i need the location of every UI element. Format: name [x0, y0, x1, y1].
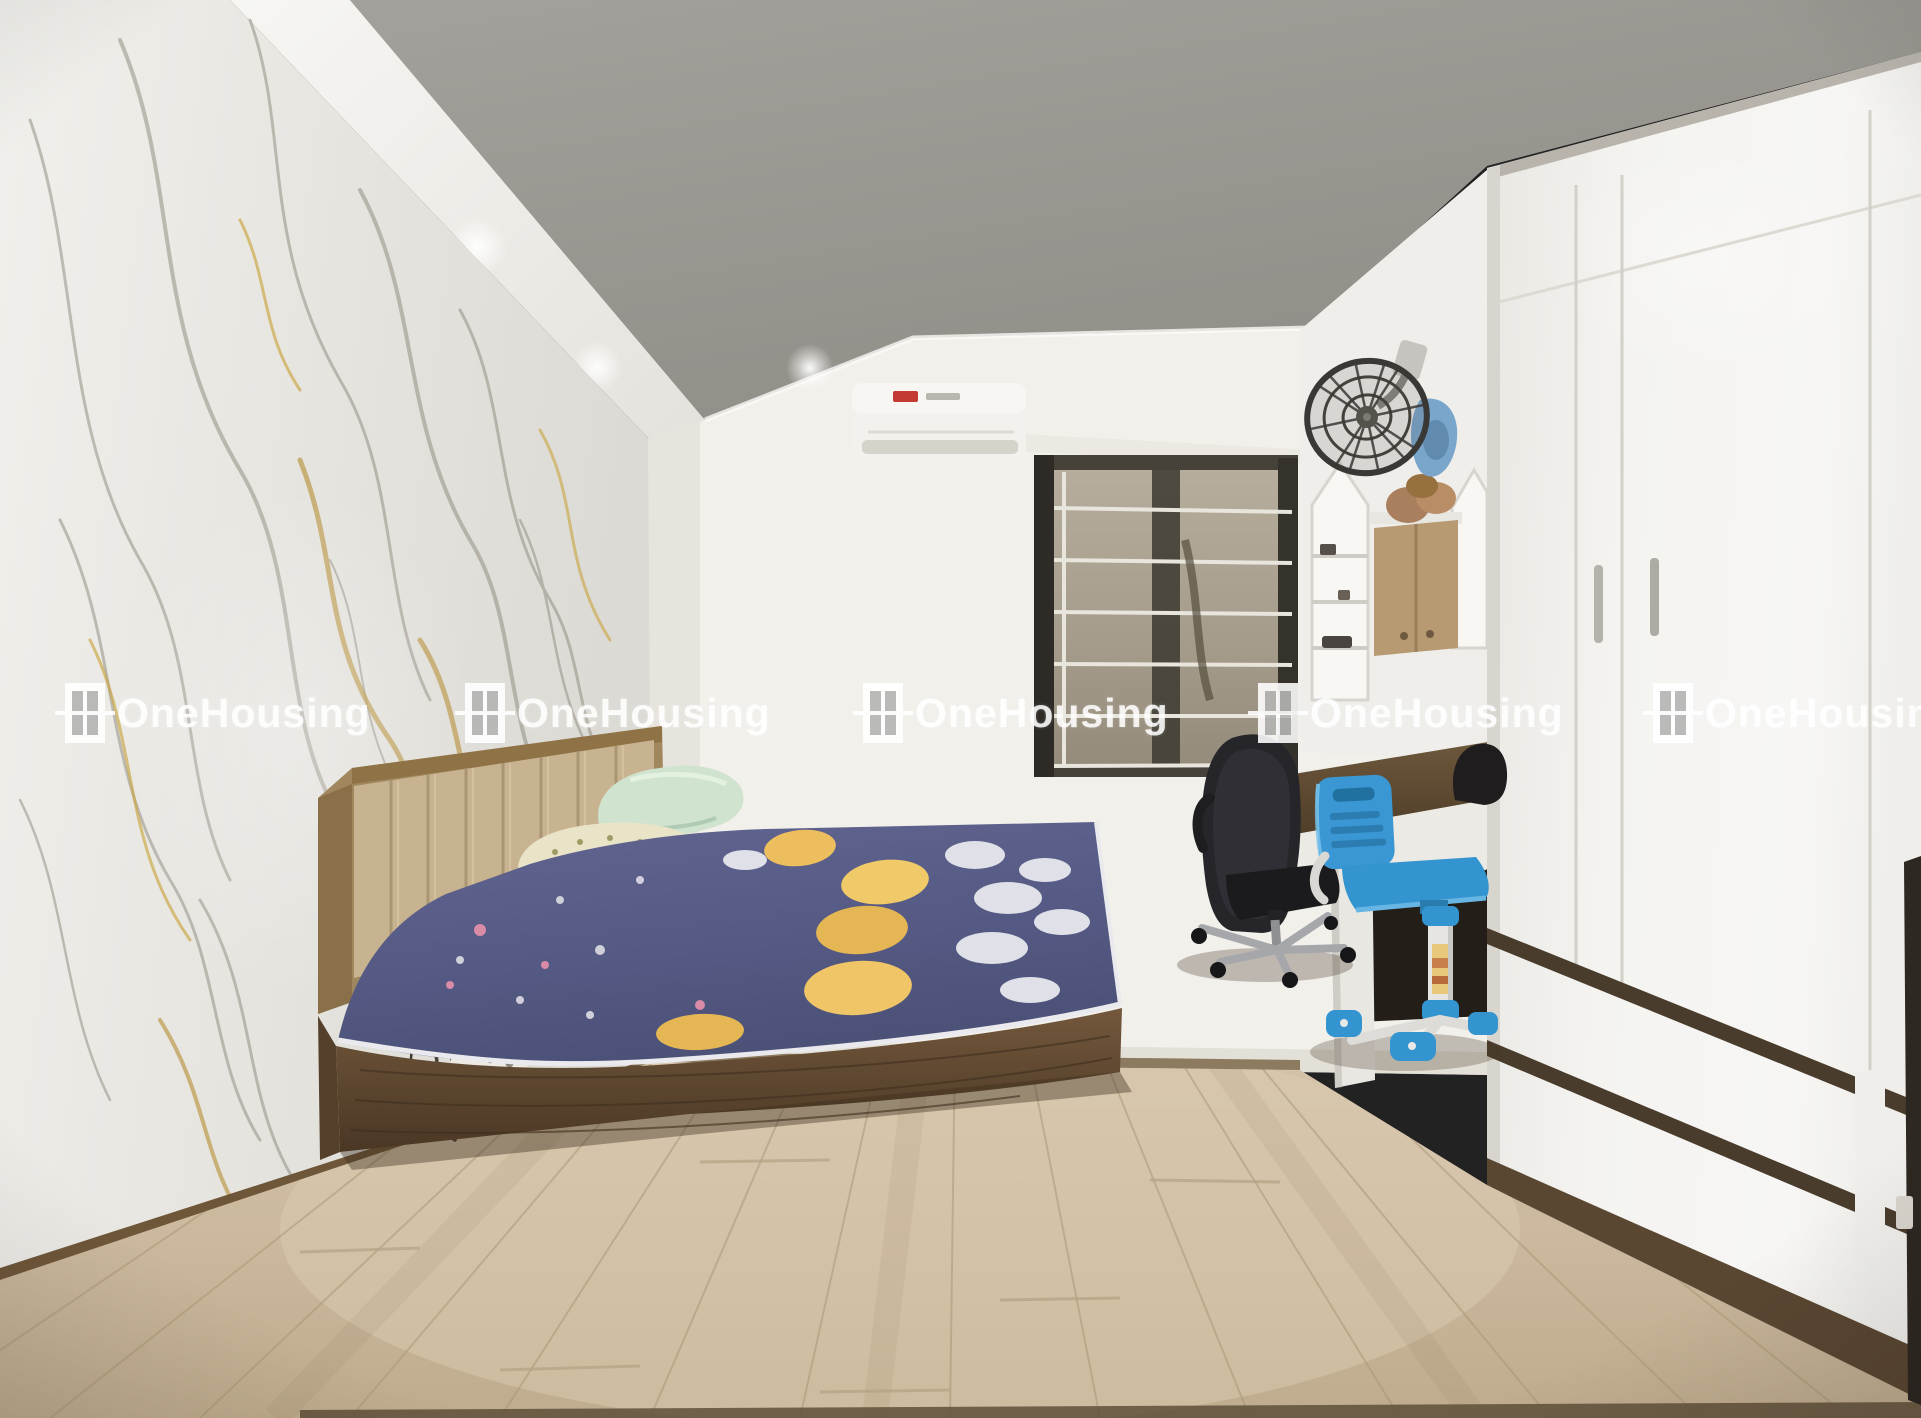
bedroom-photo: OneHousing OneHousing OneHousing OneHous… — [0, 0, 1921, 1418]
photo-vignette — [0, 0, 1921, 1418]
scene-svg — [0, 0, 1921, 1418]
